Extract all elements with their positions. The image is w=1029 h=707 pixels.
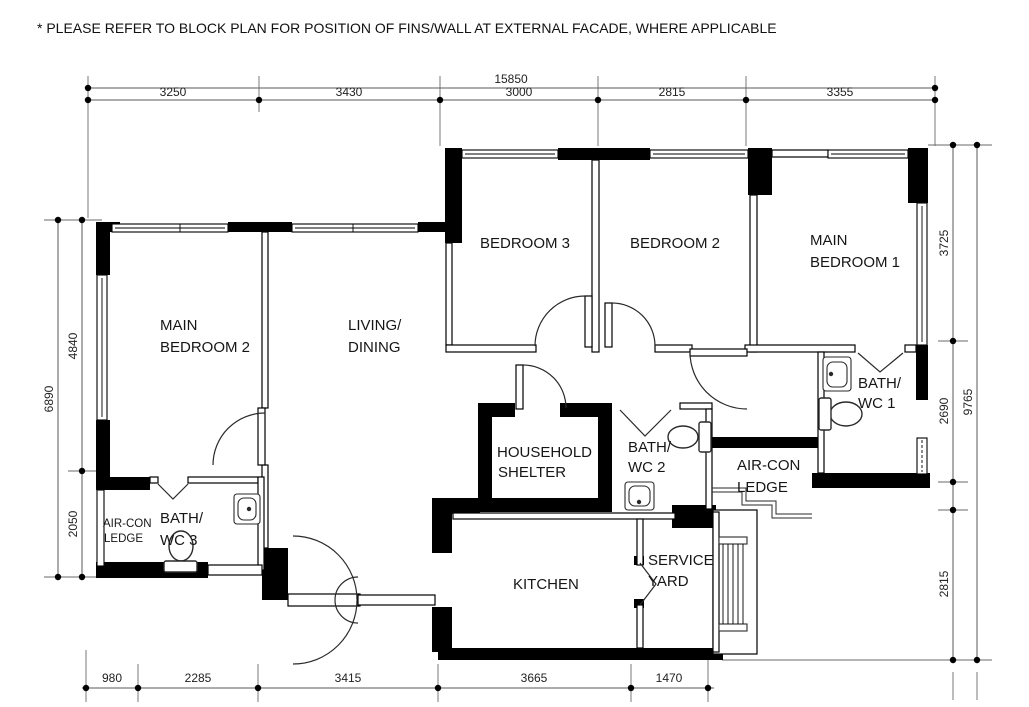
dim-top-seg-5: 3355 bbox=[827, 85, 854, 99]
dim-bottom-seg-1: 980 bbox=[102, 671, 122, 685]
dim-left-seg-2: 2050 bbox=[66, 510, 80, 537]
floor-plan-drawing: * PLEASE REFER TO BLOCK PLAN FOR POSITIO… bbox=[0, 0, 1029, 707]
label-bath3-line2: WC 3 bbox=[160, 532, 198, 549]
window-main-bedroom1-right bbox=[917, 203, 927, 345]
label-bedroom3: BEDROOM 3 bbox=[480, 235, 570, 252]
label-bath2-line2: WC 2 bbox=[628, 459, 666, 476]
door-bifold-bath2 bbox=[620, 410, 671, 436]
label-main-bedroom1-line1: MAIN bbox=[810, 232, 848, 249]
dim-top-seg-1: 3250 bbox=[160, 85, 187, 99]
door-household-shelter bbox=[516, 365, 566, 409]
label-household-shelter-line2: SHELTER bbox=[498, 464, 566, 481]
facade-disclaimer-note: * PLEASE REFER TO BLOCK PLAN FOR POSITIO… bbox=[37, 20, 777, 36]
dim-right-seg-2: 2690 bbox=[937, 397, 951, 424]
dim-right-total: 9765 bbox=[961, 388, 975, 415]
label-living-dining-line2: DINING bbox=[348, 339, 401, 356]
window-main-bedroom2-left bbox=[97, 275, 107, 420]
door-bifold-bath3 bbox=[158, 484, 188, 499]
label-bath1-line2: WC 1 bbox=[858, 395, 896, 412]
label-aircon-left-line2: LEDGE bbox=[104, 533, 143, 545]
dim-right-seg-3: 2815 bbox=[937, 570, 951, 597]
dim-bottom-seg-5: 1470 bbox=[656, 671, 683, 685]
dim-top-seg-3: 3000 bbox=[506, 85, 533, 99]
label-bath1-line1: BATH/ bbox=[858, 375, 902, 392]
window-bedroom2-top bbox=[650, 150, 748, 158]
dim-right-seg-1: 3725 bbox=[937, 229, 951, 256]
window-main-bedroom2-top bbox=[112, 224, 228, 232]
door-main-bedroom1 bbox=[690, 349, 747, 409]
floor-plan-page: * PLEASE REFER TO BLOCK PLAN FOR POSITIO… bbox=[0, 0, 1029, 707]
dimension-left: 6890 4840 2050 bbox=[42, 217, 102, 580]
label-service-yard-line2: YARD bbox=[648, 573, 689, 590]
dim-bottom-seg-2: 2285 bbox=[185, 671, 212, 685]
basin-bath1-icon bbox=[823, 357, 851, 391]
label-kitchen: KITCHEN bbox=[513, 576, 579, 593]
toilet-bath2-icon bbox=[668, 422, 711, 452]
label-aircon-right-line1: AIR-CON bbox=[737, 457, 800, 474]
dim-top-seg-4: 2815 bbox=[659, 85, 686, 99]
door-main-bedroom2 bbox=[213, 408, 265, 465]
label-service-yard-line1: SERVICE bbox=[648, 552, 714, 569]
label-household-shelter-line1: HOUSEHOLD bbox=[497, 444, 592, 461]
window-bath1-louvre bbox=[917, 438, 927, 474]
label-bath3-line1: BATH/ bbox=[160, 510, 204, 527]
label-bedroom2: BEDROOM 2 bbox=[630, 235, 720, 252]
window-main-bedroom1-top bbox=[828, 150, 908, 158]
dim-left-total: 6890 bbox=[42, 385, 56, 412]
dim-bottom-seg-4: 3665 bbox=[521, 671, 548, 685]
dimension-top: 15850 3250 3430 3000 2815 3355 bbox=[85, 72, 938, 218]
toilet-bath1-icon bbox=[819, 398, 862, 430]
label-bath2-line1: BATH/ bbox=[628, 439, 672, 456]
dim-left-seg-1: 4840 bbox=[66, 332, 80, 359]
door-bedroom3 bbox=[535, 296, 592, 347]
label-main-bedroom2-line2: BEDROOM 2 bbox=[160, 339, 250, 356]
dim-top-seg-2: 3430 bbox=[336, 85, 363, 99]
window-living-top bbox=[292, 224, 418, 232]
dim-bottom-seg-3: 3415 bbox=[335, 671, 362, 685]
window-bedroom3-top bbox=[462, 150, 558, 158]
door-bifold-bath1 bbox=[858, 353, 903, 372]
label-aircon-left-line1: AIR-CON bbox=[103, 518, 152, 530]
label-living-dining-line1: LIVING/ bbox=[348, 317, 402, 334]
basin-bath2-icon bbox=[625, 482, 654, 510]
door-bedroom2 bbox=[605, 303, 655, 347]
label-main-bedroom2-line1: MAIN bbox=[160, 317, 198, 334]
laundry-rack-icon bbox=[719, 537, 747, 631]
dim-top-total: 15850 bbox=[494, 72, 528, 86]
basin-bath3-icon bbox=[234, 494, 260, 524]
label-aircon-right-line2: LEDGE bbox=[737, 479, 788, 496]
label-main-bedroom1-line2: BEDROOM 1 bbox=[810, 254, 900, 271]
